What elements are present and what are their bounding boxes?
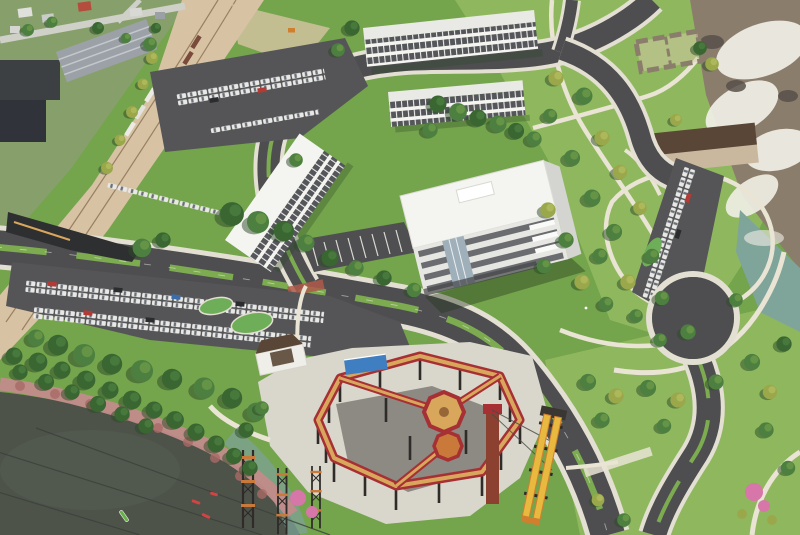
pink-tree <box>290 490 306 506</box>
industrial-building <box>0 60 60 100</box>
shore-rock <box>153 423 163 433</box>
pink-tree <box>306 506 318 518</box>
industrial-building <box>0 100 46 142</box>
rock-outcrop <box>778 90 798 102</box>
rust-tower-cap <box>483 404 502 414</box>
scene-canvas <box>0 0 800 535</box>
shore-rock <box>15 381 25 391</box>
person-dot <box>585 307 588 310</box>
yellow-shrub <box>737 509 747 519</box>
post <box>385 398 388 422</box>
yellow-shrub <box>767 515 777 525</box>
rust-tower <box>486 408 499 504</box>
shore-rock <box>210 453 220 463</box>
turnaround-circle <box>652 277 734 359</box>
car <box>235 301 244 307</box>
shore-rock <box>50 389 60 399</box>
aerial-rendering <box>0 0 800 535</box>
house <box>10 26 20 33</box>
house <box>155 12 165 19</box>
house <box>130 7 143 16</box>
car <box>113 287 122 293</box>
pool-foam <box>744 230 784 246</box>
car <box>83 310 92 316</box>
tower-hatch <box>439 407 449 417</box>
shore-rock <box>257 489 267 499</box>
excavator <box>288 28 295 33</box>
pink-tree <box>745 483 763 501</box>
post <box>465 430 468 454</box>
lower-tower-platform <box>434 432 462 460</box>
house-red-roof <box>78 1 92 12</box>
car <box>47 281 56 287</box>
car <box>171 294 180 300</box>
rock-outcrop <box>726 80 746 92</box>
post <box>409 436 412 460</box>
pink-tree <box>758 500 770 512</box>
car <box>145 317 154 323</box>
